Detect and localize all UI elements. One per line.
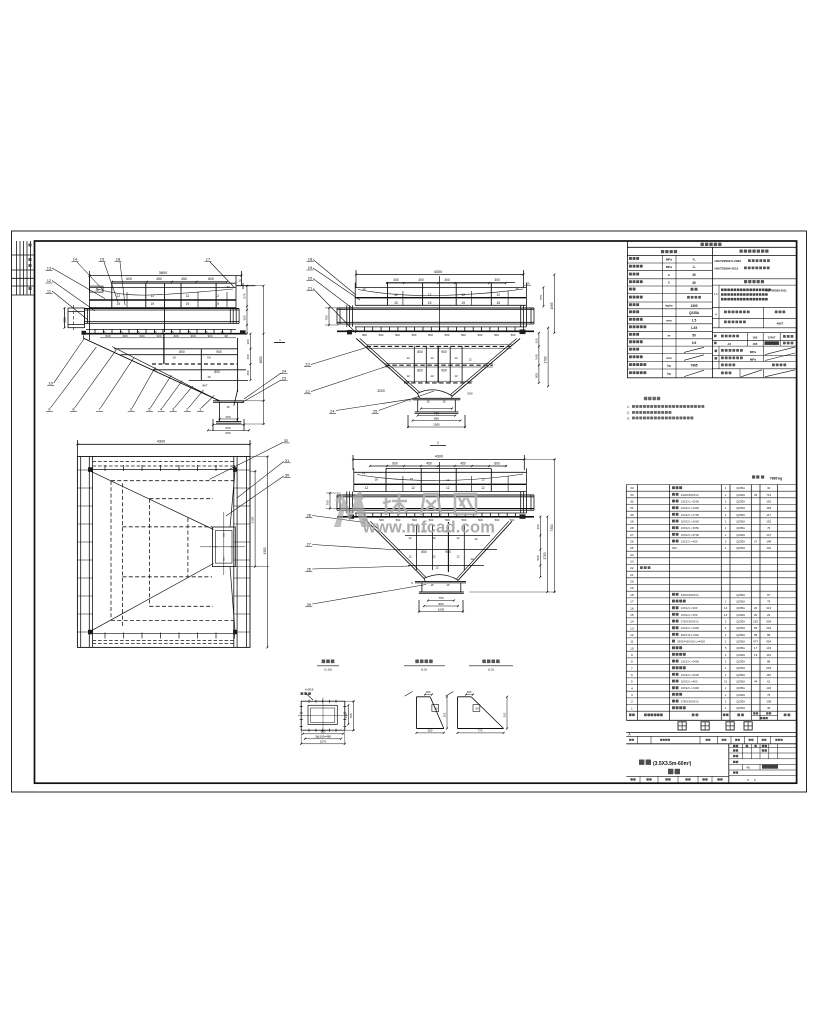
svg-text:29: 29 [307,602,312,607]
svg-text:12: 12 [454,356,458,360]
svg-text:500: 500 [395,333,400,337]
svg-text:6: 6 [631,673,633,677]
svg-text:900: 900 [441,368,447,372]
svg-text:300: 300 [494,278,500,282]
svg-text:1700: 1700 [544,356,548,363]
svg-text:Q235A: Q235A [736,640,745,644]
svg-text:22: 22 [767,613,771,617]
svg-text:1.5: 1.5 [692,318,697,322]
svg-text:142: 142 [766,546,771,550]
svg-text:-12: -12 [727,342,732,346]
svg-text:633: 633 [766,666,771,670]
svg-text:1: 1 [631,706,633,710]
svg-text:18: 18 [375,478,379,482]
svg-text:10X22 L=1500: 10X22 L=1500 [681,500,700,504]
svg-text:15: 15 [426,399,430,403]
svg-text:600: 600 [494,461,500,465]
svg-text:575: 575 [243,293,247,298]
svg-text:10X22 L=1630: 10X22 L=1630 [681,673,700,677]
svg-text:12: 12 [432,555,436,559]
svg-text:Q235A: Q235A [736,546,745,550]
svg-text:MPa: MPa [666,258,673,262]
svg-text:12: 12 [117,294,121,298]
svg-text:450: 450 [225,415,230,419]
svg-text:500: 500 [478,333,483,337]
svg-text:143: 143 [766,646,771,650]
svg-text:34: 34 [754,493,758,497]
svg-text:67: 67 [767,593,771,597]
svg-text:Q235A: Q235A [689,311,700,315]
svg-text:19: 19 [151,302,155,306]
svg-text:113: 113 [766,653,771,657]
svg-text:15: 15 [204,330,208,334]
svg-text:12: 12 [435,566,439,570]
svg-text:313: 313 [766,606,771,610]
svg-text:17457: 17457 [767,335,775,339]
svg-text:300: 300 [122,334,127,338]
svg-text:89: 89 [767,633,771,637]
svg-text:25: 25 [630,546,634,550]
svg-text:152: 152 [766,500,771,504]
svg-text:450: 450 [181,277,187,281]
svg-text:15: 15 [170,330,174,334]
svg-text:2760X300X10: 2760X300X10 [681,620,699,624]
svg-text:12: 12 [411,486,415,490]
svg-text:117: 117 [766,513,771,517]
svg-text:12: 12 [481,478,485,482]
svg-text:Q235A: Q235A [736,673,745,677]
svg-text:32: 32 [630,500,634,504]
svg-text:21: 21 [724,680,728,684]
svg-text:7965: 7965 [690,364,697,368]
svg-text:300: 300 [156,334,161,338]
svg-text:15: 15 [497,301,501,305]
svg-text:Q235A: Q235A [736,653,745,657]
svg-text:10: 10 [48,381,53,386]
svg-text:700: 700 [326,500,330,505]
svg-text:20: 20 [630,580,634,584]
svg-text:kg/m: kg/m [665,304,672,308]
svg-text:18: 18 [116,257,121,262]
svg-text:1300: 1300 [690,304,697,308]
svg-text:(1:5): (1:5) [421,668,427,672]
svg-text:118: 118 [766,506,771,510]
svg-text:12: 12 [362,287,366,291]
svg-text:30: 30 [226,285,230,289]
svg-text:15: 15 [187,330,191,334]
svg-text:520: 520 [105,334,110,338]
svg-text:23: 23 [282,376,287,381]
svg-text:12: 12 [362,471,366,475]
svg-text:10X22 L=2400: 10X22 L=2400 [681,660,700,664]
svg-text:30: 30 [692,273,696,277]
svg-text:138: 138 [766,700,771,704]
svg-text:800: 800 [421,550,427,554]
svg-text:6-Ø18: 6-Ø18 [305,688,314,692]
svg-text:2780X300X10: 2780X300X10 [681,700,699,704]
svg-text:mm: mm [666,318,672,322]
svg-text:8: 8 [631,660,633,664]
svg-text:19: 19 [186,302,190,306]
svg-text:4300X300X10: 4300X300X10 [681,593,699,597]
svg-text:500: 500 [445,333,450,337]
svg-text:19: 19 [117,302,121,306]
svg-text:Q235A: Q235A [736,486,745,490]
svg-text:500: 500 [362,333,367,337]
svg-text:3.: 3. [627,417,630,421]
svg-text:10: 10 [630,646,634,650]
svg-text:12: 12 [186,294,190,298]
svg-text:900: 900 [441,350,447,354]
svg-text:Q235A: Q235A [736,686,745,690]
svg-text:10X22 L=1600: 10X22 L=1600 [681,520,700,524]
svg-text:100: 100 [467,690,472,694]
svg-text:Q235A: Q235A [736,493,745,497]
svg-text:20: 20 [754,606,758,610]
svg-text:306: 306 [173,334,178,338]
svg-text:800: 800 [417,350,423,354]
svg-text:10X22 L=1550: 10X22 L=1550 [681,526,700,530]
svg-text:28: 28 [307,512,312,517]
svg-text:14: 14 [73,257,78,262]
svg-text:115: 115 [766,673,771,677]
svg-text:500: 500 [467,392,472,396]
svg-text:12: 12 [470,557,474,561]
svg-text:Q235A: Q235A [736,613,745,617]
svg-text:4: 4 [631,686,633,690]
svg-text:X: X [747,778,749,782]
svg-text:13: 13 [630,626,634,630]
svg-text:30: 30 [285,472,290,477]
svg-text:21: 21 [630,573,634,577]
svg-text:15: 15 [100,257,105,262]
svg-text:HG/T20583-2011: HG/T20583-2011 [765,289,787,293]
svg-text:31: 31 [285,458,290,463]
svg-text:3800: 3800 [159,271,167,275]
svg-text:12: 12 [408,555,412,559]
svg-text:88: 88 [767,660,771,664]
svg-text:mm: mm [666,356,672,360]
svg-text:29: 29 [630,520,634,524]
svg-text:3@160=480: 3@160=480 [315,735,331,739]
svg-text:600: 600 [392,461,398,465]
svg-text:Q235A: Q235A [736,620,745,624]
svg-text:12: 12 [461,293,465,297]
svg-text:15: 15 [207,375,211,379]
svg-text:Q235A: Q235A [736,680,745,684]
svg-text:4300: 4300 [435,455,443,459]
svg-text:Q235A: Q235A [736,633,745,637]
svg-text:900: 900 [216,350,222,354]
svg-text:600: 600 [208,277,214,281]
svg-text:15: 15 [446,583,450,587]
svg-text:12: 12 [454,374,458,378]
svg-text:22: 22 [630,566,634,570]
svg-text:152: 152 [766,520,771,524]
svg-text:Q235A: Q235A [736,500,745,504]
svg-text:φ: φ [715,312,717,316]
svg-text:750: 750 [434,411,439,415]
svg-text:33: 33 [630,493,634,497]
svg-text:4300: 4300 [157,440,165,444]
svg-text:5A: 5A [207,356,211,360]
svg-text:2950X420X16 L=4920: 2950X420X16 L=4920 [677,640,705,644]
svg-text:10X22 L=200: 10X22 L=200 [681,606,698,610]
svg-text:460: 460 [246,354,250,359]
svg-text:Q235A: Q235A [736,520,745,524]
svg-text:12: 12 [474,537,478,541]
svg-text:148: 148 [766,540,771,544]
svg-text:1.45: 1.45 [691,326,697,330]
svg-text:Q235A: Q235A [736,533,745,537]
svg-text:4827: 4827 [777,322,784,326]
svg-text:800: 800 [179,350,185,354]
svg-text:300: 300 [246,339,250,344]
svg-text:27: 27 [307,542,312,547]
svg-text:14: 14 [630,620,634,624]
svg-text:480: 480 [246,370,250,375]
svg-text:15: 15 [461,301,465,305]
svg-text:850: 850 [438,602,443,606]
svg-text:24: 24 [330,408,335,413]
svg-text:22: 22 [305,389,310,394]
svg-text:12: 12 [430,356,434,360]
svg-text:10X22 L=400: 10X22 L=400 [681,540,698,544]
svg-text:Q235A: Q235A [736,700,745,704]
svg-text:4300: 4300 [263,547,267,554]
svg-text:12: 12 [406,356,410,360]
svg-text:600X10 L=840: 600X10 L=840 [681,633,700,637]
svg-text:12: 12 [428,293,432,297]
svg-text:34: 34 [767,486,771,490]
svg-text:300: 300 [243,315,247,320]
svg-text:31: 31 [630,506,634,510]
svg-text:575: 575 [539,295,543,300]
svg-text:28: 28 [630,526,634,530]
svg-text:MPa: MPa [750,350,757,354]
svg-text:Q235A: Q235A [736,600,745,604]
svg-text:12: 12 [456,555,460,559]
svg-text:500: 500 [535,373,539,378]
svg-text:2150: 2150 [251,516,255,523]
svg-text:302: 302 [503,712,507,717]
svg-text:7: 7 [631,666,633,670]
svg-text:3200: 3200 [377,389,385,393]
svg-text:20: 20 [754,613,758,617]
svg-text:76: 76 [767,526,771,530]
svg-text:1005: 1005 [438,607,445,611]
svg-text:19: 19 [215,302,219,306]
svg-text:59: 59 [754,626,758,630]
svg-text:12: 12 [215,294,219,298]
svg-text:400: 400 [444,278,450,282]
svg-text:954: 954 [766,640,771,644]
svg-text:12: 12 [468,358,472,362]
svg-text:17: 17 [206,257,211,262]
svg-text:30: 30 [692,281,696,285]
svg-text:(1:10): (1:10) [324,668,332,672]
svg-text:(1:5): (1:5) [488,668,494,672]
svg-text:50: 50 [692,333,696,337]
svg-text:300: 300 [393,278,399,282]
svg-text:1585: 1585 [550,302,554,309]
svg-text:10X22 L=150: 10X22 L=150 [681,613,698,617]
svg-text:100: 100 [426,690,431,694]
svg-text:1700: 1700 [543,552,547,559]
svg-text:27: 27 [630,533,634,537]
svg-text:16: 16 [630,606,634,610]
svg-text:10X22 L=1300: 10X22 L=1300 [681,686,700,690]
svg-text:15: 15 [430,583,434,587]
svg-text:10X22 L=1900: 10X22 L=1900 [681,626,700,630]
svg-text:MPa: MPa [750,357,757,361]
svg-text:800: 800 [417,368,423,372]
svg-text:867: 867 [202,384,207,388]
svg-text:Q235A: Q235A [736,526,745,530]
svg-text:12: 12 [365,486,369,490]
svg-text:500: 500 [379,333,384,337]
svg-text:23: 23 [305,362,310,367]
svg-text:300: 300 [190,334,195,338]
svg-text:2: 2 [437,441,439,445]
svg-text:Q235A: Q235A [736,593,745,597]
svg-text:11: 11 [630,640,633,644]
svg-text:Q235A: Q235A [736,660,745,664]
svg-text:44: 44 [754,680,758,684]
svg-text:500: 500 [412,333,417,337]
svg-text:4300X300X10: 4300X300X10 [681,493,699,497]
svg-text:27: 27 [754,540,758,544]
svg-text:17: 17 [754,646,758,650]
svg-text:9: 9 [631,653,633,657]
svg-text:-L: -L [692,265,695,269]
svg-text:7965 kg: 7965 kg [770,477,782,481]
svg-text:Q235A: Q235A [736,606,745,610]
svg-text:500: 500 [63,317,67,323]
svg-text:Q235A: Q235A [736,706,745,710]
svg-text:15: 15 [442,399,446,403]
svg-text:600: 600 [225,426,230,430]
svg-text:15: 15 [220,330,224,334]
svg-text:18: 18 [95,288,99,292]
svg-text:18: 18 [630,593,634,597]
svg-text:165: 165 [753,335,758,339]
svg-text:Q235A: Q235A [736,540,745,544]
svg-text:10X22 L=400: 10X22 L=400 [681,680,698,684]
svg-text:Q235A: Q235A [736,646,745,650]
svg-text:700: 700 [325,315,329,320]
svg-text:15: 15 [153,330,157,334]
svg-text:500: 500 [495,518,500,522]
svg-text:Q235A: Q235A [736,693,745,697]
svg-text:MPa: MPa [666,265,673,269]
svg-text:504: 504 [766,620,771,624]
svg-text:360: 360 [535,338,539,343]
svg-text:1800: 1800 [259,356,263,363]
svg-text:800: 800 [214,370,220,374]
svg-text:3: 3 [631,693,633,697]
svg-text:15: 15 [630,613,634,617]
svg-text:477: 477 [753,640,758,644]
svg-text:45: 45 [746,765,750,769]
svg-text:HG/T20592.5-2009: HG/T20592.5-2009 [715,259,742,263]
svg-text:32: 32 [284,438,289,443]
svg-text:10X22 L=1300: 10X22 L=1300 [681,506,700,510]
svg-text:19: 19 [172,356,176,360]
svg-text:20: 20 [308,276,313,281]
svg-text:13: 13 [754,653,758,657]
svg-text:500: 500 [511,333,516,337]
svg-text:650: 650 [225,431,230,435]
svg-text:m: m [668,333,671,337]
svg-text:12: 12 [47,278,52,283]
svg-text:4300: 4300 [434,270,442,274]
svg-text:89: 89 [754,633,758,637]
svg-text:500: 500 [461,333,466,337]
svg-text:26: 26 [307,567,312,572]
svg-text:17: 17 [630,600,634,604]
svg-text:76: 76 [767,693,771,697]
svg-text:200: 200 [428,729,433,733]
svg-text:2: 2 [631,700,633,704]
svg-text:12: 12 [151,294,155,298]
svg-text:10X22 L=3700: 10X22 L=3700 [681,533,700,537]
svg-text:713: 713 [766,493,771,497]
svg-text:15: 15 [226,405,230,409]
svg-text:252: 252 [753,620,758,624]
svg-text:450: 450 [426,461,432,465]
svg-text:700: 700 [349,713,353,718]
svg-text:15: 15 [119,330,123,334]
svg-text:15: 15 [515,287,519,291]
svg-text:0.6: 0.6 [692,341,697,345]
svg-text:12: 12 [394,293,398,297]
svg-text:450: 450 [460,461,466,465]
svg-text:30: 30 [224,334,228,338]
svg-text:1.: 1. [627,405,630,409]
svg-text:12: 12 [430,374,434,378]
svg-text:19: 19 [630,586,634,590]
svg-text:(3.5X3.5m-60m³): (3.5X3.5m-60m³) [653,761,692,767]
svg-text:500: 500 [510,518,515,522]
svg-text:770: 770 [478,729,483,733]
svg-text:450: 450 [156,277,162,281]
svg-text:12: 12 [630,633,634,637]
svg-text:14: 14 [724,613,728,617]
svg-text:50: 50 [475,707,479,711]
svg-text:15: 15 [238,279,242,283]
svg-text:23: 23 [630,560,634,564]
svg-text:165: 165 [753,342,758,346]
svg-text:kg: kg [667,364,671,368]
svg-text:7300: 7300 [550,524,554,531]
svg-text:147: 147 [766,533,771,537]
svg-text:30: 30 [630,513,634,517]
svg-text:21: 21 [308,286,313,291]
svg-text:400: 400 [418,278,424,282]
svg-text:25: 25 [373,408,378,413]
svg-text:1070: 1070 [320,740,327,744]
svg-text:500: 500 [494,333,499,337]
svg-text:HG/T20594-2011: HG/T20594-2011 [715,267,739,271]
svg-text:850: 850 [434,416,439,420]
svg-text:50: 50 [434,707,438,711]
svg-text:360: 360 [536,524,540,529]
svg-text:500: 500 [428,333,433,337]
svg-text:19: 19 [308,265,313,270]
svg-text:36: 36 [767,706,771,710]
svg-text:www.mfcad.com: www.mfcad.com [362,519,495,537]
